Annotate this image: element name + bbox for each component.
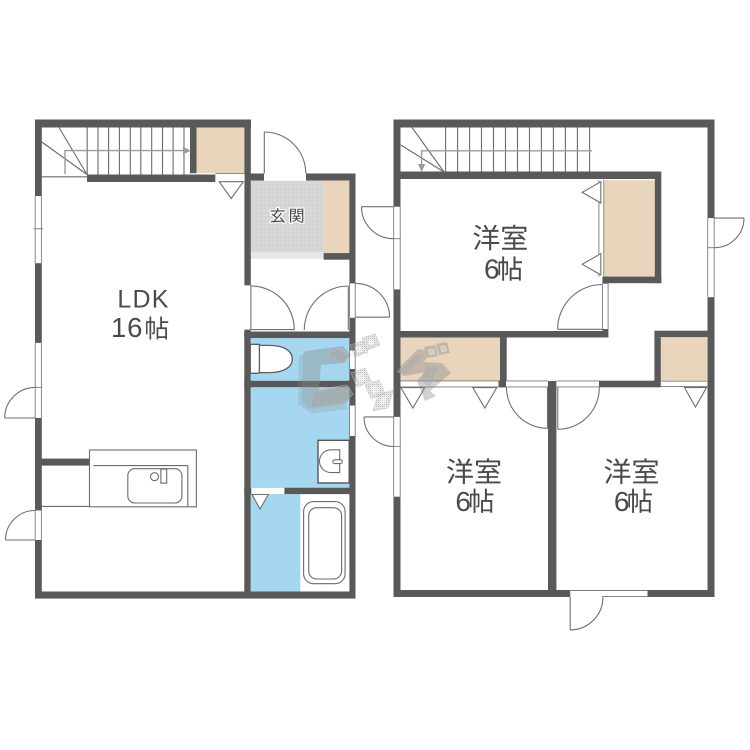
svg-text:6: 6 <box>484 254 500 285</box>
svg-text:LDK: LDK <box>117 286 169 314</box>
svg-text:16: 16 <box>111 312 143 343</box>
svg-text:6: 6 <box>614 486 630 517</box>
svg-text:6: 6 <box>455 486 471 517</box>
